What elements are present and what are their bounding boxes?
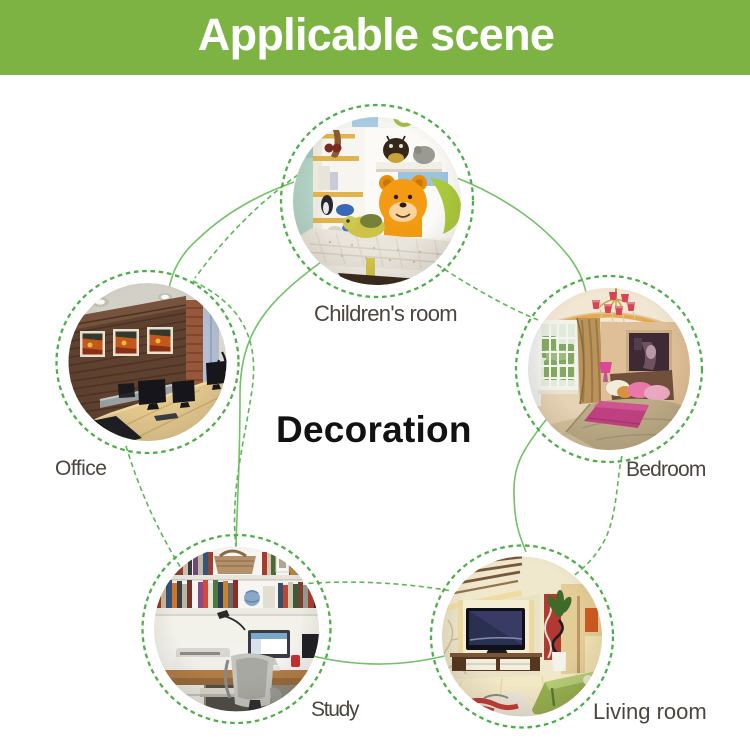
svg-text:Bedroom: Bedroom — [626, 458, 706, 481]
svg-text:Decoration: Decoration — [276, 409, 472, 450]
svg-text:Applicable scene: Applicable scene — [198, 9, 554, 60]
svg-text:Children's room: Children's room — [314, 301, 457, 326]
svg-text:Office: Office — [55, 457, 106, 480]
svg-text:Living room: Living room — [593, 699, 707, 724]
svg-text:Study: Study — [311, 698, 360, 721]
